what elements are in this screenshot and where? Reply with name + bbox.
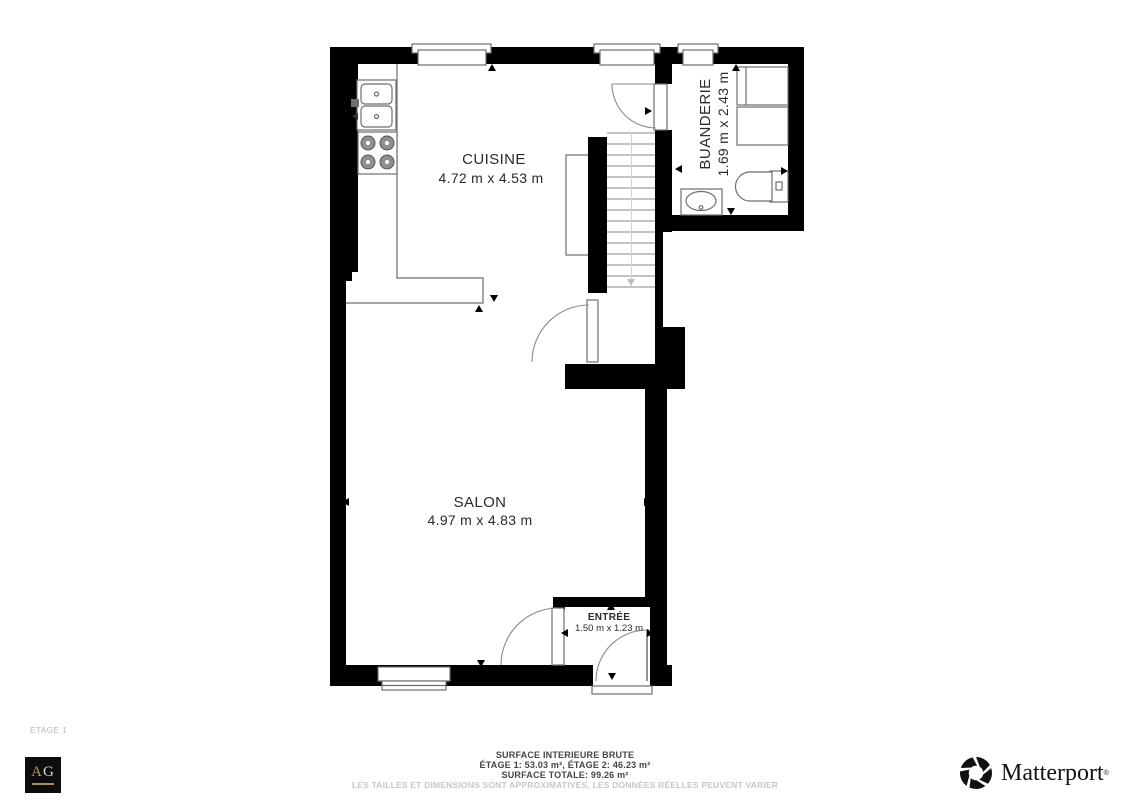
surface-title: SURFACE INTERIEURE BRUTE bbox=[245, 750, 885, 760]
buanderie-window bbox=[678, 44, 718, 65]
hall-window bbox=[594, 44, 660, 65]
agency-logo: AG bbox=[25, 757, 61, 793]
entrance-opening bbox=[593, 665, 650, 686]
matterport-pinwheel-icon bbox=[958, 755, 994, 791]
footer-surface-summary: SURFACE INTERIEURE BRUTE ÉTAGE 1: 53.03 … bbox=[245, 750, 885, 790]
buanderie-door bbox=[612, 84, 667, 130]
matterport-reg-mark: ® bbox=[1104, 770, 1109, 777]
floor-label: ÉTAGE 1 bbox=[30, 726, 67, 735]
surface-total: SURFACE TOTALE: 99.26 m² bbox=[245, 770, 885, 780]
stove-icon bbox=[358, 132, 397, 174]
entrance-threshold bbox=[592, 686, 652, 694]
room-dims-entree: 1.50 m x 1.23 m bbox=[575, 623, 643, 634]
entree-salon-door bbox=[501, 608, 564, 665]
stair-direction-arrow bbox=[627, 279, 635, 286]
room-label-buanderie: BUANDERIE bbox=[697, 78, 714, 169]
agency-letter-g: G bbox=[43, 764, 55, 780]
room-dims-salon: 4.97 m x 4.83 m bbox=[428, 512, 533, 528]
kitchen-sink-icon bbox=[351, 80, 396, 130]
salon-window bbox=[378, 667, 450, 690]
matterport-wordmark: Matterport bbox=[1001, 760, 1104, 787]
kitchen-window bbox=[412, 44, 491, 65]
room-label-cuisine: CUISINE bbox=[462, 151, 526, 168]
floor-plan-svg: CUISINE 4.72 m x 4.53 m SALON 4.97 m x 4… bbox=[0, 0, 1131, 800]
staircase bbox=[607, 133, 655, 287]
toilet-icon bbox=[736, 171, 789, 202]
surface-per-floor: ÉTAGE 1: 53.03 m², ÉTAGE 2: 46.23 m² bbox=[245, 760, 885, 770]
laundry-sink-icon bbox=[681, 189, 722, 215]
room-dims-buanderie: 1.69 m x 2.43 m bbox=[715, 72, 731, 177]
agency-logo-subtext bbox=[32, 783, 54, 785]
washer-dryer-icon bbox=[737, 67, 788, 145]
room-dims-cuisine: 4.72 m x 4.53 m bbox=[439, 170, 544, 186]
agency-logo-letters: AG bbox=[31, 765, 55, 780]
room-label-salon: SALON bbox=[454, 494, 507, 511]
agency-letter-a: A bbox=[31, 764, 43, 780]
room-label-entree: ENTRÉE bbox=[588, 610, 630, 623]
disclaimer-text: LES TAILLES ET DIMENSIONS SONT APPROXIMA… bbox=[245, 780, 885, 790]
stair-landing-door bbox=[532, 300, 598, 362]
walls bbox=[330, 47, 804, 686]
matterport-logo: Matterport® bbox=[958, 752, 1109, 794]
